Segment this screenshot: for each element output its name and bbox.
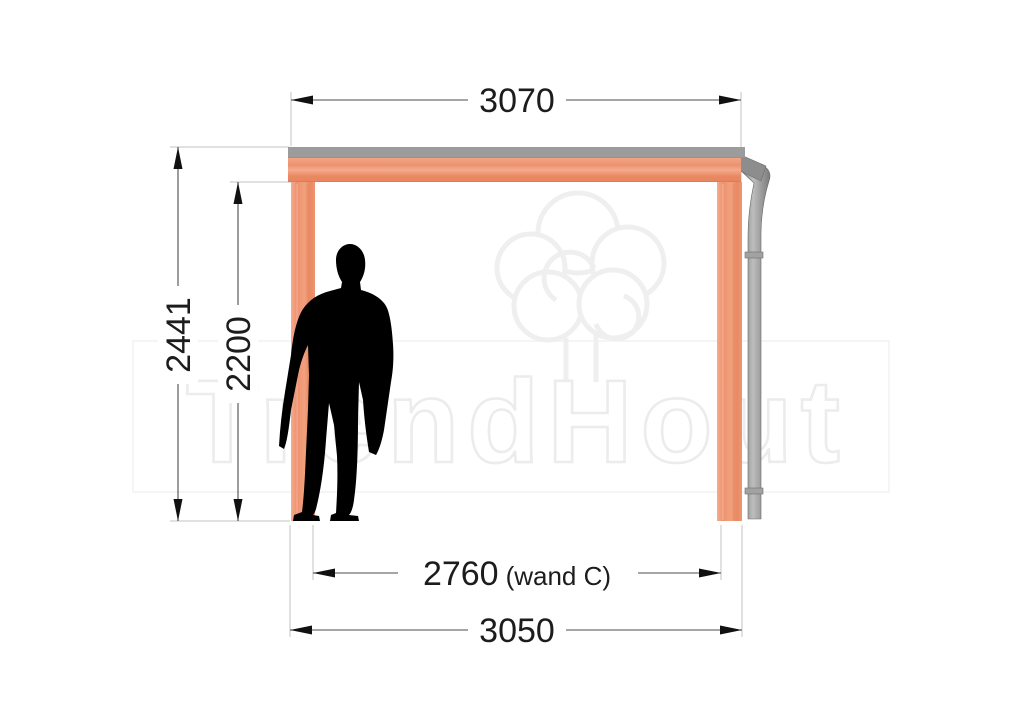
dim-label-passage-height: 2200 — [220, 316, 258, 392]
tree-logo-icon — [497, 193, 664, 382]
dim-label-roof-width: 3070 — [479, 82, 555, 120]
arrow-up-icon — [174, 147, 183, 169]
arrow-right-icon — [699, 569, 721, 578]
roof-edge — [288, 147, 745, 158]
pipe-coupling-lower — [745, 488, 763, 494]
pipe-coupling-upper — [745, 252, 763, 258]
elevation-drawing: TrendHout — [0, 0, 1024, 704]
front-beam — [288, 158, 741, 182]
dim-label-post-span: 3050 — [479, 612, 555, 650]
dim-label-wall-span: 2760(wand C) — [423, 555, 611, 593]
arrow-right-icon — [720, 626, 742, 635]
arrow-left-icon — [313, 569, 335, 578]
arrow-left-icon — [291, 96, 313, 105]
dim-label-wall-span-suffix: (wand C) — [506, 561, 611, 591]
dim-label-total-height: 2441 — [160, 297, 198, 373]
arrow-up-icon — [234, 182, 243, 204]
right-post — [717, 182, 742, 521]
arrow-right-icon — [719, 96, 741, 105]
arrow-left-icon — [290, 626, 312, 635]
dim-label-wall-span-value: 2760 — [423, 555, 499, 593]
technical-drawing-canvas: TrendHout — [0, 0, 1024, 704]
arrow-down-icon — [174, 499, 183, 521]
arrow-down-icon — [234, 499, 243, 521]
